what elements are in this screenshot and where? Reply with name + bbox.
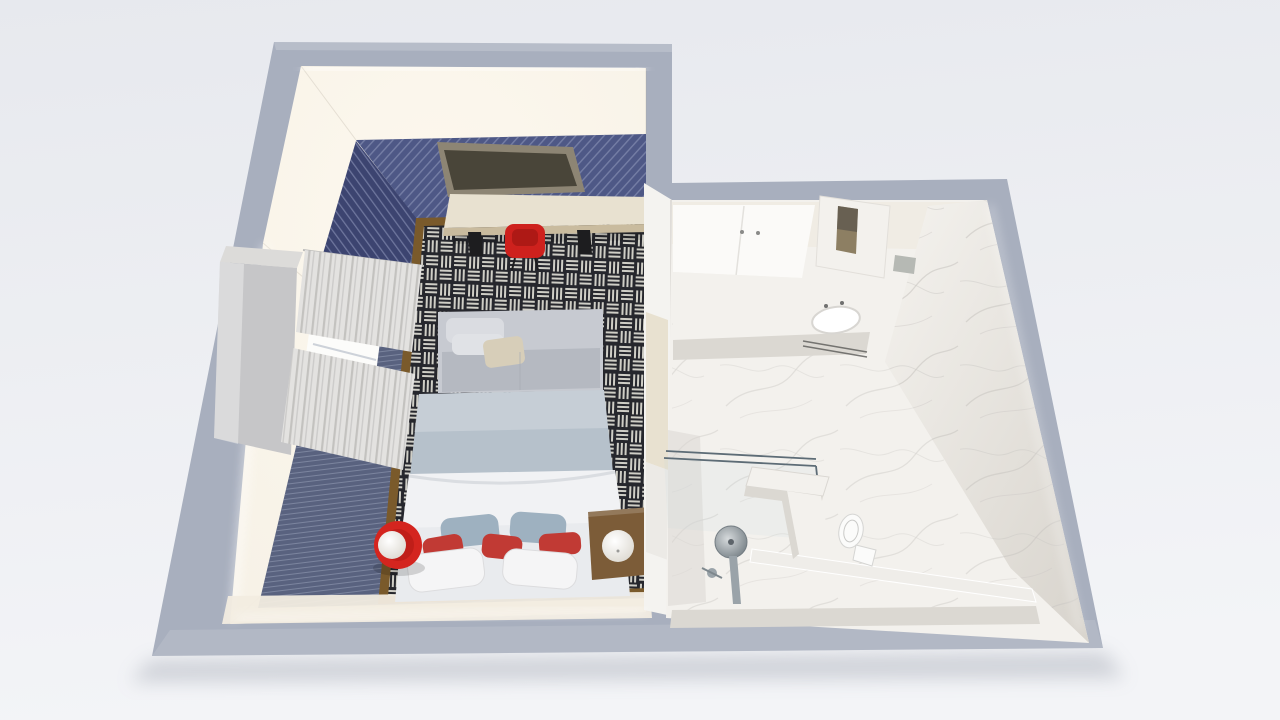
pillow-white-2 [502, 548, 579, 590]
desk-top [444, 194, 649, 228]
floorplan-canvas [0, 0, 1280, 720]
tv-panel [437, 142, 585, 197]
sofa [438, 309, 603, 393]
shower-head-center [728, 539, 734, 545]
table-lamp-sphere [378, 531, 406, 559]
gray-box [893, 255, 916, 274]
lamp-switch-dot [617, 550, 620, 553]
cabinet-handle-2 [756, 231, 760, 235]
coverlet-sheen [414, 390, 608, 432]
faucet-dot-1 [824, 304, 828, 308]
tv-screen [444, 150, 577, 190]
desk-leg-left [468, 232, 483, 256]
sofa-beige-pillow [482, 335, 526, 368]
3d-floorplan-screenshot [0, 0, 1280, 720]
divider-cabinet [646, 312, 668, 470]
chair-seat [512, 229, 538, 246]
niche-shadow [837, 206, 858, 232]
divider-cabinet-lower [646, 462, 668, 560]
cabinet-handle-1 [740, 230, 744, 234]
faucet-dot-2 [840, 301, 844, 305]
nightstand-lamp-sphere [602, 530, 634, 562]
desk-leg-right [577, 230, 592, 254]
cornice-light-top [303, 68, 645, 70]
vanity-upper-cabinet [673, 205, 815, 278]
